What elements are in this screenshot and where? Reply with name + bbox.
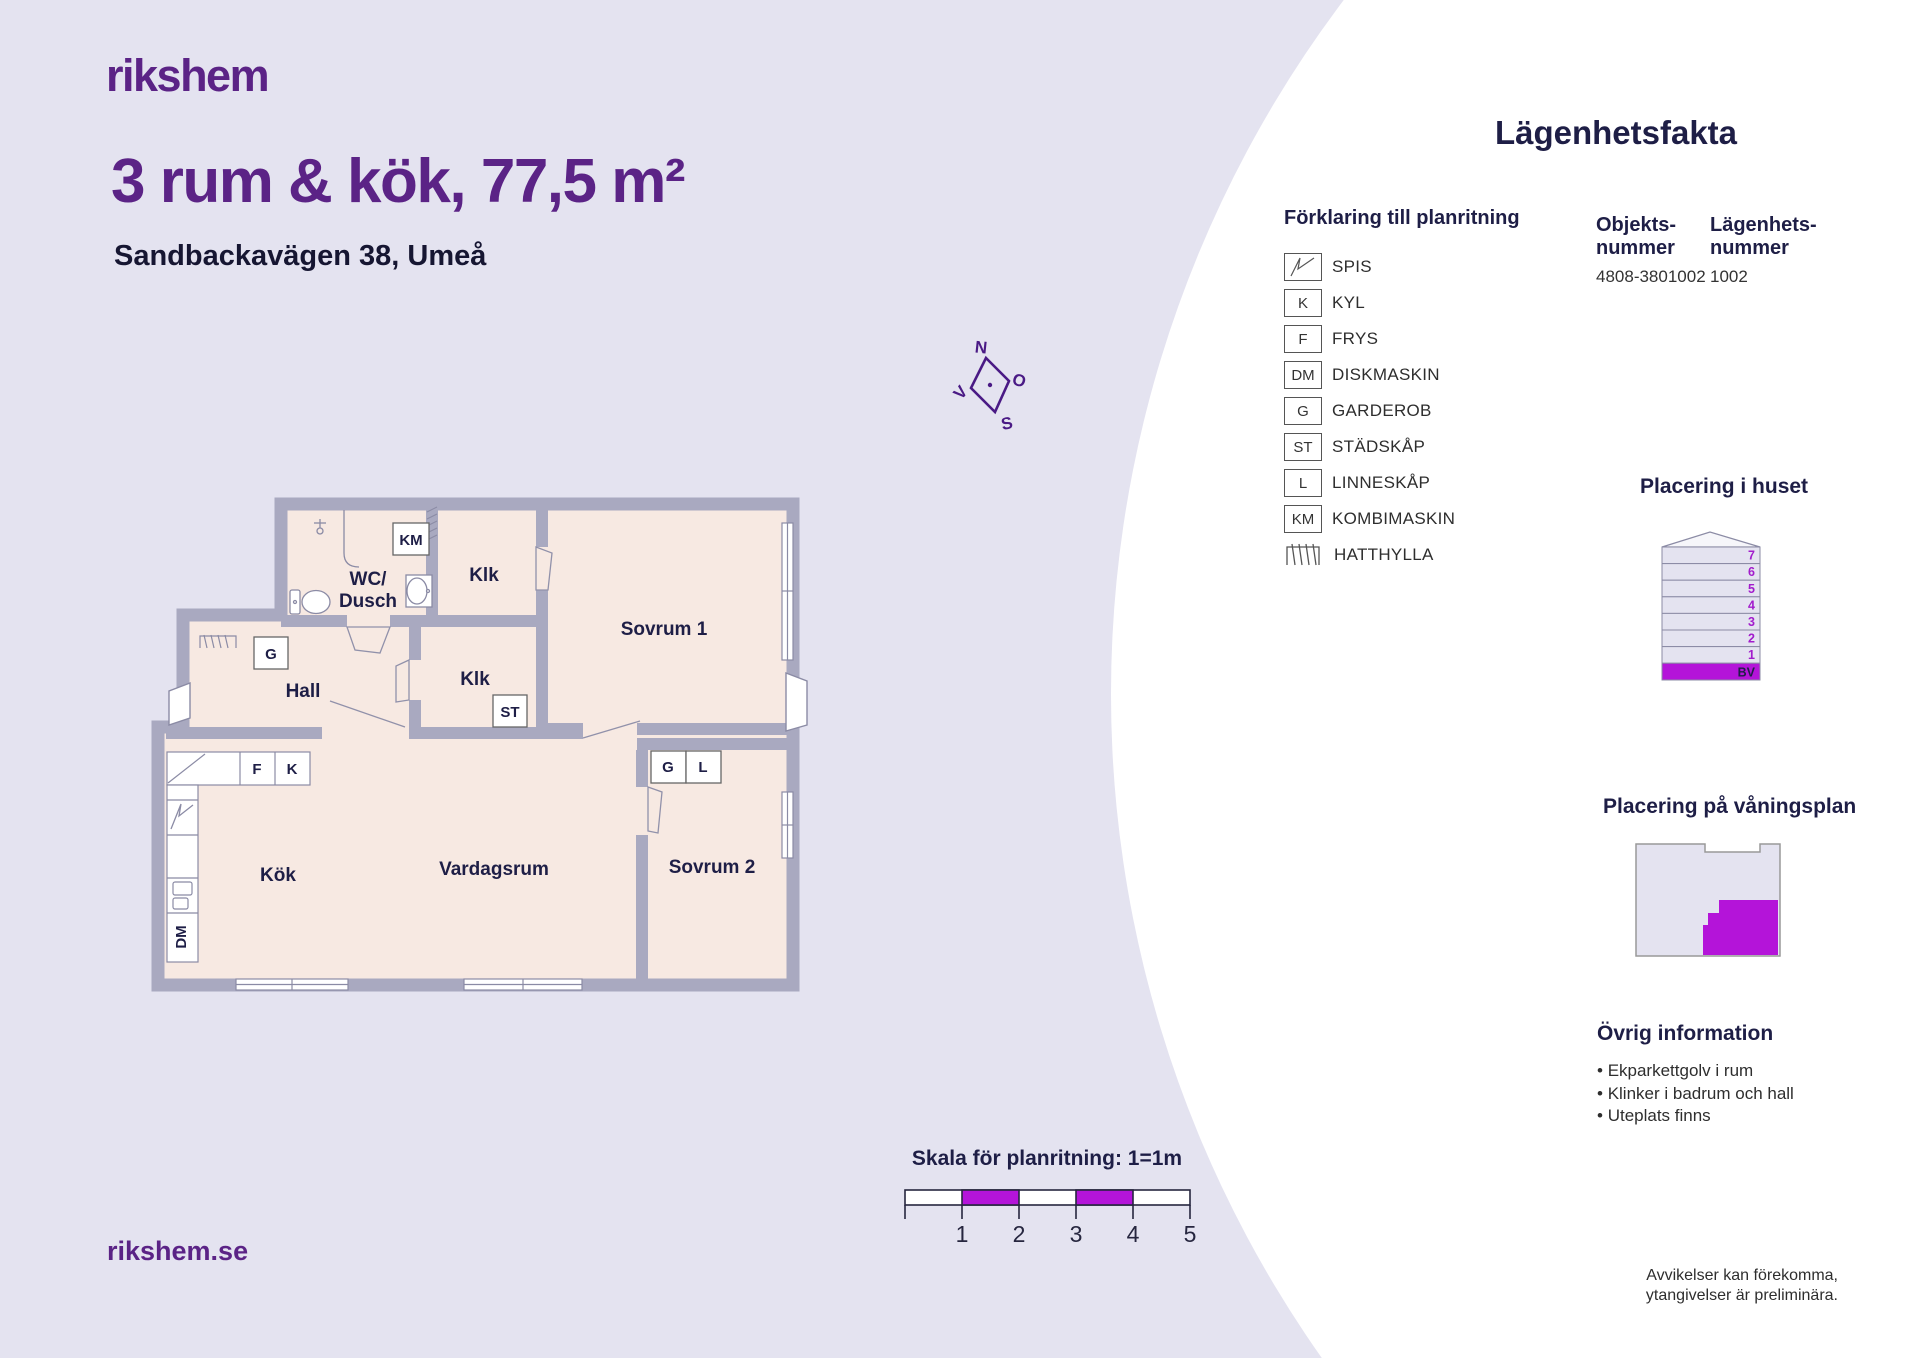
marker-dm: DM [173, 925, 190, 948]
room-label-wc-1: WC/ [350, 569, 388, 590]
svg-text:6: 6 [1748, 565, 1755, 579]
legend-symbol-km: KM [1284, 505, 1322, 533]
marker-k: K [287, 761, 298, 778]
svg-text:4: 4 [1127, 1221, 1140, 1247]
page-title: 3 rum & kök, 77,5 m² [111, 146, 684, 217]
svg-text:4: 4 [1748, 598, 1755, 612]
svg-text:2: 2 [1748, 632, 1755, 646]
marker-l: L [698, 759, 707, 776]
disclaimer: Avvikelser kan förekomma, ytangivelser ä… [1538, 1266, 1838, 1306]
compass-o: O [1010, 369, 1028, 391]
room-label-sovrum2: Sovrum 2 [669, 857, 756, 878]
svg-text:2: 2 [1013, 1221, 1026, 1247]
legend-symbol-dm: DM [1284, 361, 1322, 389]
wc-sink [406, 575, 432, 607]
floor-position-diagram [1635, 843, 1781, 957]
svg-text:1: 1 [956, 1221, 969, 1247]
room-label-wc-2: Dusch [339, 591, 397, 612]
svg-text:5: 5 [1184, 1221, 1197, 1247]
compass-n: N [974, 337, 988, 357]
marker-f: F [252, 761, 261, 778]
entry-door [169, 683, 190, 725]
other-info-list: Ekparkettgolv i rum Klinker i badrum och… [1597, 1060, 1794, 1128]
object-number-block: Objekts- nummer 4808-3801002 [1596, 214, 1706, 287]
other-info-item: Uteplats finns [1597, 1105, 1794, 1128]
balcony-door [786, 673, 807, 731]
marker-g-sovrum2: G [662, 759, 674, 776]
room-label-hall: Hall [286, 681, 321, 702]
object-number-value: 4808-3801002 [1596, 267, 1706, 287]
svg-text:7: 7 [1748, 549, 1755, 563]
legend-item-diskmaskin: DM DISKMASKIN [1284, 361, 1440, 389]
legend-item-linneskap: L LINNESKÅP [1284, 469, 1430, 497]
toilet [290, 590, 330, 614]
legend-symbol-st: ST [1284, 433, 1322, 461]
floor-position-heading: Placering på våningsplan [1603, 795, 1856, 819]
building-diagram: 7 6 5 4 3 2 1 BV [1655, 528, 1767, 686]
apartment-number-label: Lägenhets- nummer [1710, 214, 1817, 260]
legend-item-garderob: G GARDEROB [1284, 397, 1432, 425]
website-link: rikshem.se [107, 1236, 248, 1267]
room-label-vardagsrum: Vardagsrum [439, 859, 549, 880]
legend-symbol-g: G [1284, 397, 1322, 425]
room-label-kok: Kök [260, 865, 296, 886]
legend-item-hatthylla: HATTHYLLA [1282, 541, 1434, 569]
legend-heading: Förklaring till planritning [1284, 207, 1520, 230]
legend-symbol-l: L [1284, 469, 1322, 497]
apartment-fact-sheet: rikshem 3 rum & kök, 77,5 m² Sandbackavä… [0, 0, 1920, 1358]
marker-st: ST [500, 704, 519, 721]
legend-symbol-k: K [1284, 289, 1322, 317]
floor-plan: KM G ST F K G L DM WC/ Dusch Klk Sovrum … [150, 495, 810, 995]
other-info-heading: Övrig information [1597, 1022, 1773, 1046]
other-info-item: Klinker i badrum och hall [1597, 1083, 1794, 1106]
marker-g-hall: G [265, 646, 277, 663]
legend-item-kombimaskin: KM KOMBIMASKIN [1284, 505, 1455, 533]
legend-item-kyl: K KYL [1284, 289, 1365, 317]
ground-floor-label: BV [1738, 665, 1756, 679]
marker-km: KM [399, 532, 422, 549]
compass-v: V [950, 382, 972, 404]
svg-text:1: 1 [1748, 648, 1755, 662]
klk-mid-door [396, 660, 409, 702]
legend-item-stadskap: ST STÄDSKÅP [1284, 433, 1425, 461]
compass-icon: N O S V [950, 336, 1035, 436]
hatthylla-icon [1282, 539, 1324, 572]
apartment-number-block: Lägenhets- nummer 1002 [1710, 214, 1817, 287]
room-label-sovrum1: Sovrum 1 [621, 619, 708, 640]
other-info-item: Ekparkettgolv i rum [1597, 1060, 1794, 1083]
legend-item-spis: SPIS [1284, 253, 1372, 281]
svg-text:5: 5 [1748, 582, 1755, 596]
apartment-number-value: 1002 [1710, 267, 1817, 287]
white-circle-background [1111, 0, 1920, 1358]
scale-heading: Skala för planritning: 1=1m [897, 1147, 1197, 1171]
legend-item-frys: F FRYS [1284, 325, 1378, 353]
spis-icon [1284, 253, 1322, 281]
object-number-label: Objekts- nummer [1596, 214, 1706, 260]
rikshem-logo: rikshem [106, 50, 268, 102]
room-label-klk-mid: Klk [460, 669, 490, 690]
building-position-heading: Placering i huset [1640, 475, 1808, 499]
svg-text:3: 3 [1070, 1221, 1083, 1247]
facts-heading: Lägenhetsfakta [1441, 114, 1791, 152]
address-subtitle: Sandbackavägen 38, Umeå [114, 240, 486, 273]
compass-s: S [999, 413, 1014, 434]
scale-bar: 1 2 3 4 5 [900, 1186, 1200, 1256]
legend-symbol-f: F [1284, 325, 1322, 353]
svg-text:3: 3 [1748, 615, 1755, 629]
room-label-klk-top: Klk [469, 565, 499, 586]
